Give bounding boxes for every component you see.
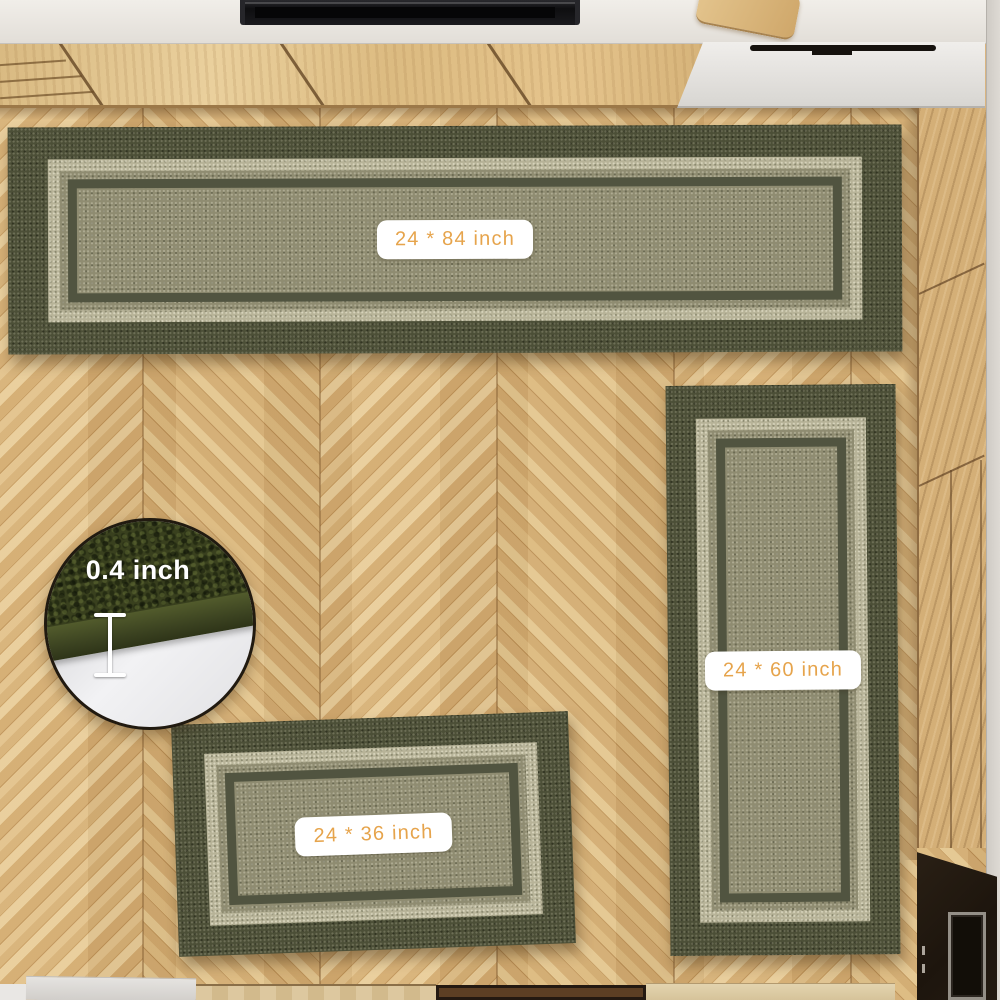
tv-sheen [245,2,575,4]
panel-seam-vertical [950,470,952,848]
kitchen-top-view-photo: 24 * 84 inch 24 * 60 inch 24 * 36 inch [0,0,1000,1000]
stool-white-small [0,984,26,1000]
rug-inner-field: 24 * 60 inch [716,437,850,902]
cabinet-floor-shadow [0,108,1000,120]
wood-paneling-right [917,108,986,848]
thickness-label: 0.4 inch [47,555,229,586]
tv-screen-panel [255,7,555,18]
bench-wood-left [196,984,436,1000]
measure-icon [94,613,126,677]
rug-runner: 24 * 60 inch [666,384,901,956]
panel-seam-vertical [980,460,982,848]
stool-white-large [26,976,196,1000]
rug-small: 24 * 36 inch [171,711,576,957]
measure-cap-bottom [94,673,126,677]
panel-seam [919,263,985,295]
wall-strip-right [986,0,1000,1000]
rug-light-band: 24 * 36 inch [204,742,543,926]
oven-detail [922,964,925,973]
oven-detail [922,946,925,955]
thickness-inset-circle: 0.4 inch [44,518,256,730]
oven-handle-frame [948,912,986,1000]
measure-stem [108,613,112,677]
size-label-large: 24 * 84 inch [377,220,533,260]
paneling-floor-shadow [903,108,917,860]
rug-field-gap: 24 * 84 inch [60,169,850,311]
rug-light-band: 24 * 84 inch [48,157,863,323]
rug-field-gap: 24 * 60 inch [708,429,858,910]
rug-inner-field: 24 * 84 inch [68,177,842,303]
cabinet-row [0,44,712,108]
tv-screen [240,0,580,25]
rug-field-gap: 24 * 36 inch [217,755,531,914]
vent-slot-small [812,51,852,55]
dishwasher-top-panel [677,42,985,108]
rug-inner-field: 24 * 36 inch [225,763,522,905]
floor-vent-dark [436,985,646,1000]
cabinet-wood-grain [0,44,712,105]
rug-closeup [44,518,256,689]
rug-light-band: 24 * 60 inch [696,417,870,922]
bench-wood-right [646,983,895,1000]
size-label-small: 24 * 36 inch [295,812,452,856]
size-label-runner: 24 * 60 inch [705,650,861,690]
rug-large: 24 * 84 inch [8,124,903,354]
